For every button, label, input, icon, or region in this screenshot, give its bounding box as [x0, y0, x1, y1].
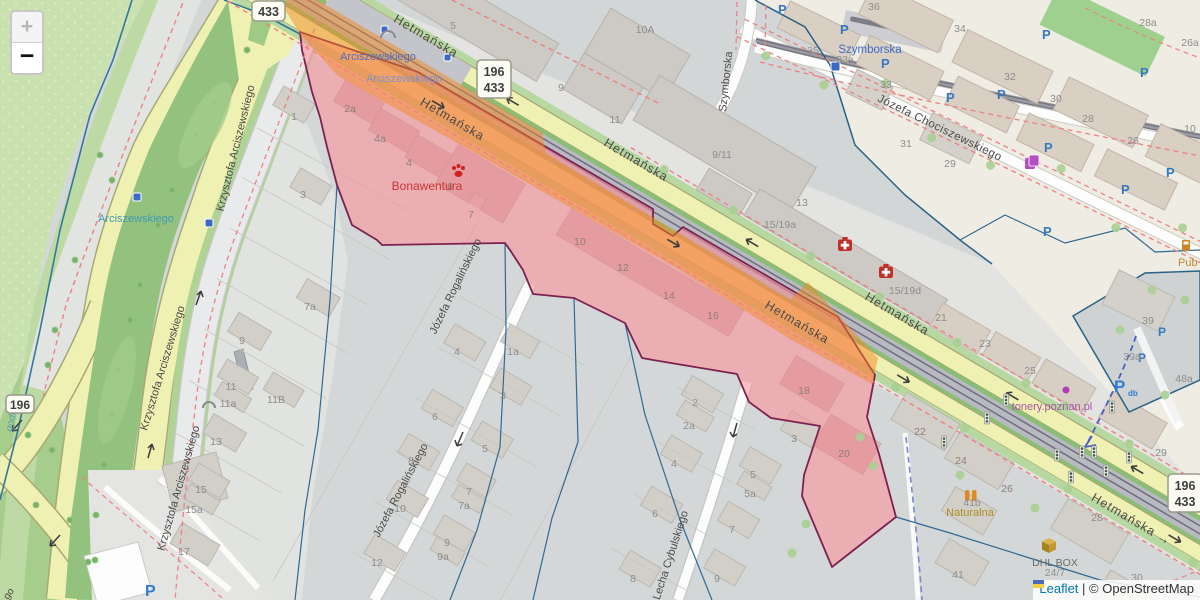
- svg-text:11a: 11a: [220, 398, 237, 410]
- svg-text:P: P: [1166, 165, 1175, 180]
- svg-text:3: 3: [300, 189, 306, 201]
- svg-text:P: P: [1121, 182, 1130, 197]
- svg-text:11B: 11B: [267, 394, 285, 406]
- svg-text:25: 25: [1024, 365, 1036, 377]
- svg-text:41: 41: [952, 569, 964, 581]
- svg-text:P: P: [881, 56, 890, 71]
- svg-text:7: 7: [729, 524, 735, 536]
- svg-text:12: 12: [371, 557, 383, 569]
- svg-text:31: 31: [900, 138, 912, 150]
- svg-text:Szymborska: Szymborska: [838, 44, 902, 56]
- svg-text:P: P: [946, 90, 955, 105]
- svg-text:433: 433: [258, 5, 279, 19]
- svg-text:7: 7: [468, 209, 474, 221]
- svg-text:29: 29: [1155, 447, 1167, 459]
- svg-text:26: 26: [1001, 483, 1013, 495]
- svg-text:5: 5: [482, 443, 488, 455]
- svg-text:Arciszewskiego: Arciszewskiego: [340, 51, 416, 63]
- svg-text:1: 1: [291, 111, 297, 123]
- svg-text:15a: 15a: [185, 504, 203, 516]
- svg-text:3: 3: [791, 433, 797, 445]
- svg-text:6: 6: [432, 411, 438, 423]
- svg-text:13: 13: [210, 436, 222, 448]
- svg-text:Arciszewskiego: Arciszewskiego: [98, 213, 174, 225]
- svg-text:32: 32: [1004, 71, 1016, 83]
- svg-text:3: 3: [500, 390, 506, 402]
- svg-text:P: P: [1042, 27, 1051, 42]
- svg-text:4: 4: [454, 346, 460, 358]
- svg-text:8: 8: [630, 573, 636, 585]
- svg-text:433: 433: [484, 81, 505, 95]
- svg-text:4: 4: [406, 157, 412, 169]
- svg-text:33: 33: [880, 79, 892, 91]
- svg-text:26a: 26a: [1181, 37, 1199, 49]
- svg-text:1a: 1a: [507, 346, 519, 358]
- svg-text:10A: 10A: [636, 24, 655, 36]
- svg-text:29: 29: [944, 158, 956, 170]
- svg-text:12: 12: [617, 262, 629, 274]
- svg-text:5: 5: [450, 20, 456, 32]
- svg-text:P: P: [778, 2, 787, 17]
- svg-text:15/19a: 15/19a: [764, 219, 796, 231]
- svg-text:196: 196: [1175, 479, 1196, 493]
- svg-text:7a: 7a: [458, 500, 470, 512]
- svg-text:7: 7: [466, 486, 472, 498]
- svg-text:24: 24: [955, 455, 967, 467]
- svg-text:tonery.poznan.pl: tonery.poznan.pl: [1012, 401, 1093, 413]
- svg-text:15: 15: [195, 484, 207, 496]
- svg-text:4a: 4a: [374, 133, 386, 145]
- svg-text:Arciszewskiego: Arciszewskiego: [366, 73, 442, 85]
- svg-text:20: 20: [838, 448, 850, 460]
- svg-text:P: P: [1044, 140, 1053, 155]
- svg-text:17: 17: [178, 546, 190, 558]
- svg-text:16: 16: [707, 310, 719, 322]
- svg-text:P: P: [1043, 224, 1052, 239]
- svg-text:10: 10: [1184, 123, 1196, 135]
- svg-text:48a: 48a: [1175, 373, 1193, 385]
- svg-text:11: 11: [610, 114, 621, 126]
- svg-text:7a: 7a: [304, 301, 316, 313]
- svg-text:30: 30: [1050, 93, 1062, 105]
- svg-text:6: 6: [652, 508, 658, 520]
- svg-text:P: P: [1140, 65, 1149, 80]
- svg-text:15/19d: 15/19d: [889, 285, 921, 297]
- svg-text:db: db: [1128, 389, 1138, 398]
- svg-text:39a: 39a: [1123, 351, 1141, 363]
- svg-text:9/11: 9/11: [712, 149, 732, 161]
- svg-text:Pub S: Pub S: [1178, 257, 1200, 269]
- svg-text:26: 26: [1127, 135, 1139, 147]
- svg-text:5: 5: [750, 469, 756, 481]
- svg-text:9: 9: [444, 537, 450, 549]
- svg-text:196: 196: [484, 65, 505, 79]
- svg-text:9: 9: [714, 573, 720, 585]
- svg-text:28: 28: [1091, 512, 1103, 524]
- svg-text:22: 22: [914, 426, 926, 438]
- svg-text:36: 36: [868, 1, 880, 13]
- svg-text:P: P: [840, 22, 849, 37]
- svg-text:4: 4: [671, 458, 677, 470]
- svg-text:35: 35: [807, 45, 819, 57]
- svg-text:18: 18: [798, 385, 810, 397]
- svg-text:2: 2: [692, 397, 698, 409]
- svg-text:34: 34: [954, 23, 966, 35]
- svg-text:21: 21: [935, 312, 947, 324]
- svg-text:P: P: [1114, 377, 1125, 396]
- svg-text:9: 9: [239, 335, 245, 347]
- svg-text:P: P: [1158, 325, 1166, 339]
- svg-text:433: 433: [1175, 495, 1196, 509]
- svg-text:P: P: [145, 583, 156, 600]
- svg-text:23: 23: [979, 338, 991, 350]
- svg-text:10: 10: [574, 236, 586, 248]
- svg-text:2a: 2a: [683, 420, 695, 432]
- svg-text:39: 39: [1142, 315, 1154, 327]
- svg-text:9a: 9a: [437, 551, 449, 563]
- svg-text:196: 196: [10, 398, 30, 412]
- svg-text:P: P: [997, 87, 1006, 102]
- svg-text:11: 11: [226, 381, 237, 393]
- svg-text:Bonawentura: Bonawentura: [392, 179, 463, 193]
- svg-text:9: 9: [558, 82, 564, 94]
- svg-text:Naturalna: Naturalna: [946, 507, 995, 519]
- svg-text:13: 13: [796, 197, 808, 209]
- svg-text:14: 14: [663, 290, 675, 302]
- svg-text:2a: 2a: [344, 103, 356, 115]
- svg-text:5a: 5a: [744, 488, 756, 500]
- svg-text:28: 28: [1082, 113, 1094, 125]
- svg-text:DHL BOX: DHL BOX: [1032, 557, 1078, 569]
- svg-text:28a: 28a: [1139, 17, 1157, 29]
